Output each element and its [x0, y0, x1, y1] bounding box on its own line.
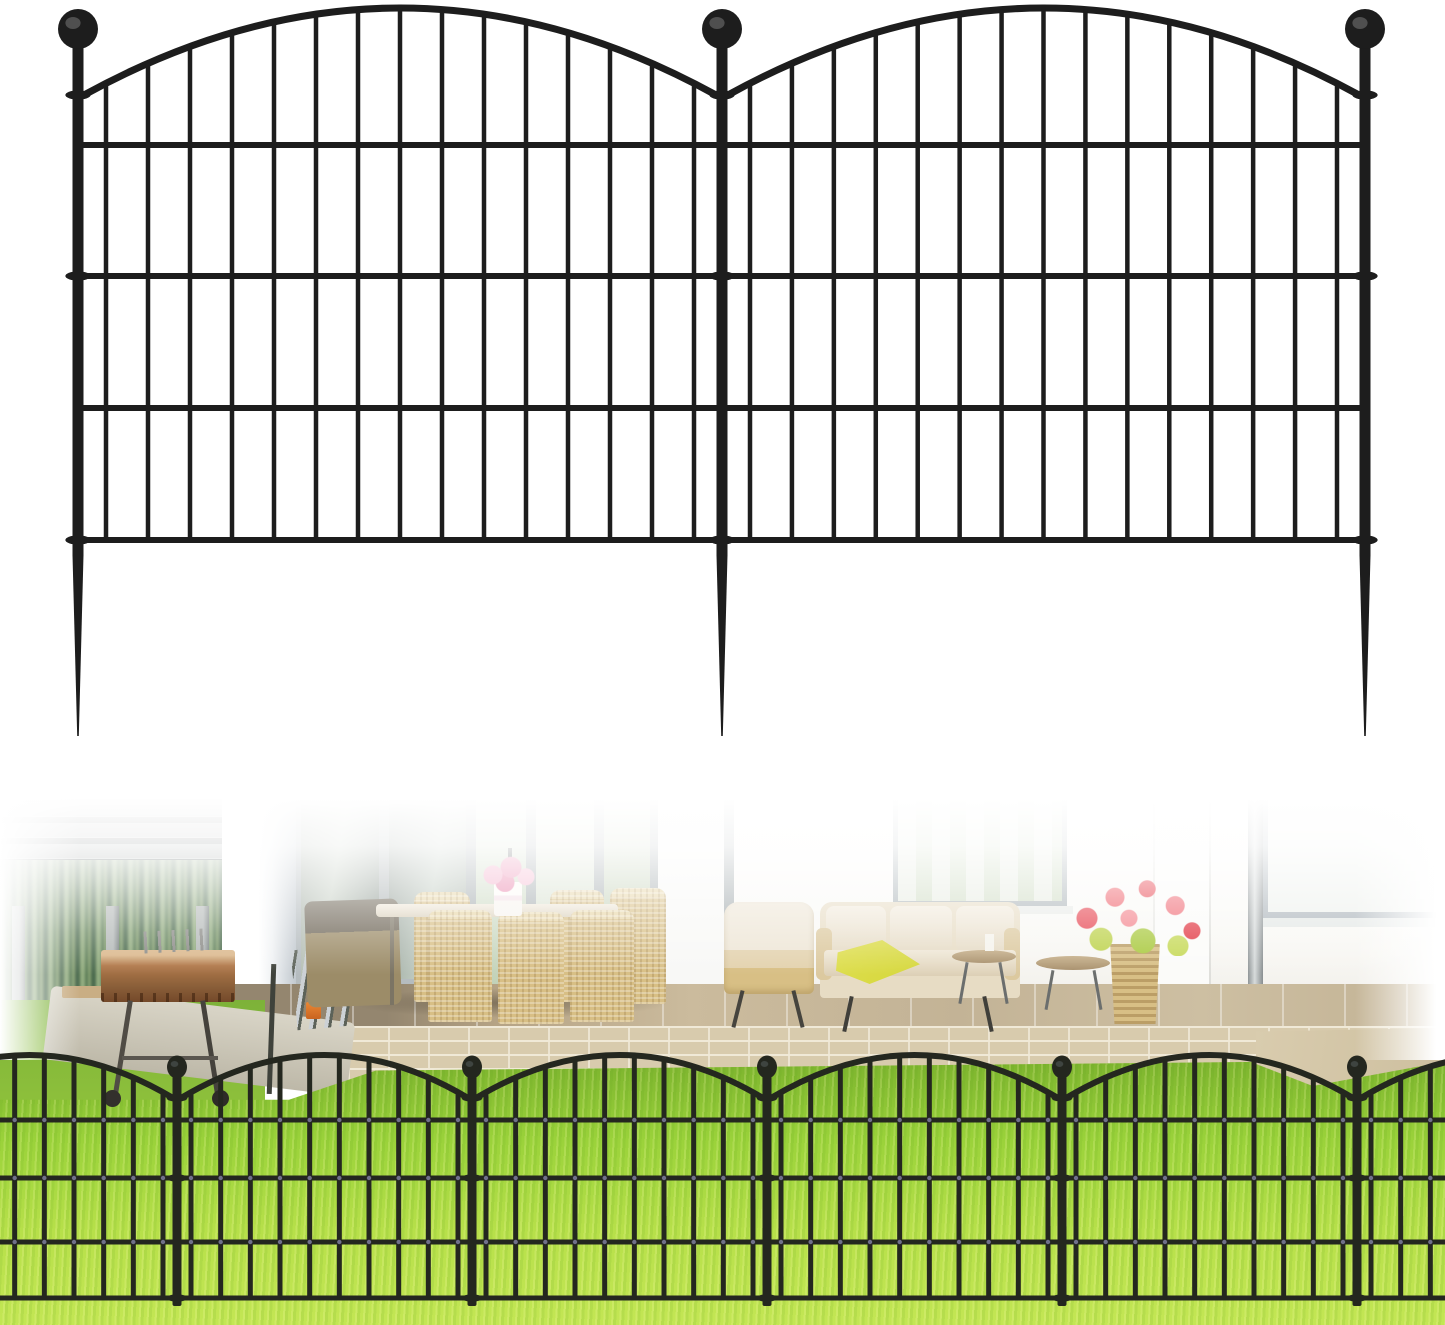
- weld-joint: [101, 1118, 105, 1122]
- fence-bar: [1016, 1078, 1021, 1298]
- post-tube: [717, 46, 728, 557]
- fence-bar: [396, 1066, 401, 1298]
- ball-highlight: [761, 1061, 769, 1067]
- fence-bar: [356, 10, 361, 540]
- fence-bar: [957, 14, 962, 540]
- weld-joint: [396, 1240, 400, 1244]
- ball-finial: [1345, 9, 1385, 49]
- fence-bar: [751, 1092, 756, 1298]
- ball-finial: [757, 1056, 777, 1079]
- weld-joint: [1016, 1118, 1020, 1122]
- fence-bar: [608, 46, 613, 540]
- weld-joint: [1103, 1118, 1107, 1122]
- weld-joint: [662, 1176, 666, 1180]
- fence-bar: [1041, 8, 1046, 540]
- fence-bar: [1167, 22, 1172, 540]
- fence-bar: [1398, 1078, 1403, 1298]
- weld-joint: [396, 1176, 400, 1180]
- weld-joint: [484, 1240, 488, 1244]
- weld-joint: [662, 1118, 666, 1122]
- ball-highlight: [1352, 17, 1367, 29]
- fence-bar: [1083, 10, 1088, 540]
- weld-joint: [1311, 1118, 1315, 1122]
- weld-joint: [12, 1240, 16, 1244]
- weld-joint: [307, 1118, 311, 1122]
- weld-joint: [779, 1240, 783, 1244]
- weld-joint: [1398, 1240, 1402, 1244]
- weld-joint: [426, 1118, 430, 1122]
- fence-arch-rail: [0, 1055, 173, 1098]
- weld-joint: [721, 1176, 725, 1180]
- spike-stake: [1360, 555, 1371, 736]
- weld-joint: [426, 1176, 430, 1180]
- weld-joint: [161, 1240, 165, 1244]
- weld-joint: [72, 1240, 76, 1244]
- weld-joint: [1369, 1176, 1373, 1180]
- ball-finial: [1052, 1056, 1072, 1079]
- weld-joint: [248, 1240, 252, 1244]
- weld-joint: [1133, 1176, 1137, 1180]
- fence-bar: [272, 22, 277, 540]
- weld-joint: [12, 1176, 16, 1180]
- weld-joint: [751, 1118, 755, 1122]
- weld-joint: [986, 1118, 990, 1122]
- weld-joint: [72, 1118, 76, 1122]
- weld-joint: [957, 1118, 961, 1122]
- post-tube: [468, 1076, 477, 1306]
- weld-joint: [632, 1176, 636, 1180]
- fence-bar: [1103, 1078, 1108, 1298]
- weld-joint: [543, 1176, 547, 1180]
- fence-bar: [999, 10, 1004, 540]
- installed-fence-foreground: [0, 760, 1445, 1325]
- weld-joint: [691, 1176, 695, 1180]
- weld-joint: [1428, 1240, 1432, 1244]
- weld-joint: [573, 1240, 577, 1244]
- weld-joint: [1369, 1118, 1373, 1122]
- weld-joint: [1103, 1176, 1107, 1180]
- weld-joint: [1046, 1118, 1050, 1122]
- weld-joint: [426, 1240, 430, 1244]
- weld-joint: [131, 1118, 135, 1122]
- weld-joint: [1133, 1118, 1137, 1122]
- fence-panels-render: [0, 0, 1445, 762]
- fence-bar: [314, 14, 319, 540]
- fence-bar: [1074, 1092, 1079, 1298]
- ball-highlight: [65, 17, 80, 29]
- fence-bar: [1335, 83, 1340, 540]
- weld-joint: [691, 1240, 695, 1244]
- fence-bar: [101, 1066, 106, 1298]
- fence-bar: [874, 33, 879, 540]
- fence-post: [58, 9, 98, 736]
- weld-joint: [868, 1118, 872, 1122]
- fence-bar: [513, 1078, 518, 1298]
- weld-joint: [367, 1118, 371, 1122]
- weld-joint: [218, 1240, 222, 1244]
- fence-bar: [748, 83, 753, 540]
- weld-joint: [1046, 1176, 1050, 1180]
- spike-stake: [717, 555, 728, 736]
- fence-bar: [1341, 1092, 1346, 1298]
- post-tube: [1058, 1076, 1067, 1306]
- weld-joint: [838, 1118, 842, 1122]
- fence-bar: [1209, 33, 1214, 540]
- weld-joint: [1163, 1240, 1167, 1244]
- fence-bar: [104, 83, 109, 540]
- weld-joint: [513, 1118, 517, 1122]
- weld-joint: [1074, 1240, 1078, 1244]
- fence-bar: [779, 1092, 784, 1298]
- fence-post: [702, 9, 742, 736]
- post-tube: [763, 1076, 772, 1306]
- ball-finial: [58, 9, 98, 49]
- weld-joint: [897, 1176, 901, 1180]
- weld-joint: [101, 1240, 105, 1244]
- weld-joint: [1016, 1176, 1020, 1180]
- fence-bar: [566, 33, 571, 540]
- ball-highlight: [709, 17, 724, 29]
- weld-joint: [751, 1176, 755, 1180]
- weld-joint: [1398, 1176, 1402, 1180]
- post-tube: [1360, 46, 1371, 557]
- weld-joint: [602, 1240, 606, 1244]
- ball-highlight: [1351, 1061, 1359, 1067]
- ball-highlight: [466, 1061, 474, 1067]
- weld-joint: [189, 1240, 193, 1244]
- fence-bar: [161, 1092, 166, 1298]
- fence-bar: [1125, 14, 1130, 540]
- fence-bar: [543, 1066, 548, 1298]
- weld-joint: [751, 1240, 755, 1244]
- weld-joint: [1222, 1240, 1226, 1244]
- ball-finial: [702, 9, 742, 49]
- product-image: Product image of black metal decorative …: [0, 0, 1445, 1325]
- weld-joint: [396, 1118, 400, 1122]
- weld-joint: [72, 1176, 76, 1180]
- weld-joint: [897, 1118, 901, 1122]
- fence-bar: [1369, 1092, 1374, 1298]
- fence-bar: [721, 1078, 726, 1298]
- fence-bar: [1293, 63, 1298, 540]
- weld-joint: [1252, 1176, 1256, 1180]
- fence-arch-rail: [771, 1055, 1058, 1098]
- weld-joint: [161, 1118, 165, 1122]
- fence-bar: [482, 14, 487, 540]
- weld-joint: [897, 1240, 901, 1244]
- fence-bar: [1133, 1066, 1138, 1298]
- weld-joint: [307, 1176, 311, 1180]
- ball-finial: [1347, 1056, 1367, 1079]
- weld-joint: [218, 1176, 222, 1180]
- weld-joint: [1016, 1240, 1020, 1244]
- weld-joint: [868, 1176, 872, 1180]
- weld-joint: [1192, 1240, 1196, 1244]
- fence-bar: [484, 1092, 489, 1298]
- weld-joint: [808, 1240, 812, 1244]
- weld-joint: [1222, 1176, 1226, 1180]
- weld-joint: [986, 1240, 990, 1244]
- weld-joint: [1311, 1240, 1315, 1244]
- weld-joint: [248, 1118, 252, 1122]
- weld-joint: [1311, 1176, 1315, 1180]
- weld-joint: [838, 1240, 842, 1244]
- weld-joint: [131, 1240, 135, 1244]
- weld-joint: [42, 1240, 46, 1244]
- weld-joint: [1341, 1176, 1345, 1180]
- spike-stake: [73, 555, 84, 736]
- fence-bar: [218, 1078, 223, 1298]
- weld-joint: [189, 1118, 193, 1122]
- weld-joint: [1252, 1118, 1256, 1122]
- weld-joint: [1074, 1118, 1078, 1122]
- fence-bar: [838, 1066, 843, 1298]
- weld-joint: [218, 1118, 222, 1122]
- weld-joint: [957, 1240, 961, 1244]
- fence-arch-rail: [1066, 1055, 1353, 1098]
- weld-joint: [779, 1118, 783, 1122]
- ball-finial: [167, 1056, 187, 1079]
- weld-joint: [278, 1118, 282, 1122]
- weld-joint: [367, 1176, 371, 1180]
- weld-joint: [1163, 1176, 1167, 1180]
- weld-joint: [1252, 1240, 1256, 1244]
- ball-highlight: [1056, 1061, 1064, 1067]
- weld-joint: [1341, 1240, 1345, 1244]
- weld-joint: [456, 1240, 460, 1244]
- weld-joint: [1192, 1118, 1196, 1122]
- weld-joint: [513, 1176, 517, 1180]
- weld-joint: [808, 1176, 812, 1180]
- weld-joint: [1192, 1176, 1196, 1180]
- weld-joint: [456, 1118, 460, 1122]
- weld-joint: [838, 1176, 842, 1180]
- weld-joint: [721, 1118, 725, 1122]
- weld-joint: [337, 1176, 341, 1180]
- ball-finial: [462, 1056, 482, 1079]
- weld-joint: [602, 1118, 606, 1122]
- weld-joint: [1428, 1176, 1432, 1180]
- fence-bar: [986, 1066, 991, 1298]
- weld-joint: [189, 1176, 193, 1180]
- post-tube: [1353, 1076, 1362, 1306]
- fence-bar: [146, 63, 151, 540]
- weld-joint: [42, 1118, 46, 1122]
- fence-bar: [188, 46, 193, 540]
- post-tube: [173, 1076, 182, 1306]
- fence-bar: [1281, 1066, 1286, 1298]
- fence-arch-rail: [476, 1055, 763, 1098]
- weld-joint: [1074, 1176, 1078, 1180]
- weld-joint: [632, 1118, 636, 1122]
- weld-joint: [1103, 1240, 1107, 1244]
- fence-bar: [650, 63, 655, 540]
- weld-joint: [927, 1118, 931, 1122]
- weld-joint: [307, 1240, 311, 1244]
- weld-joint: [367, 1240, 371, 1244]
- weld-joint: [1046, 1240, 1050, 1244]
- weld-joint: [101, 1176, 105, 1180]
- weld-joint: [662, 1240, 666, 1244]
- fence-bar: [456, 1092, 461, 1298]
- weld-joint: [868, 1240, 872, 1244]
- weld-joint: [1133, 1240, 1137, 1244]
- weld-joint: [1369, 1240, 1373, 1244]
- weld-joint: [484, 1176, 488, 1180]
- weld-joint: [927, 1240, 931, 1244]
- weld-joint: [1428, 1118, 1432, 1122]
- weld-joint: [602, 1176, 606, 1180]
- fence-bar: [131, 1078, 136, 1298]
- weld-joint: [543, 1240, 547, 1244]
- weld-joint: [278, 1240, 282, 1244]
- weld-joint: [337, 1118, 341, 1122]
- weld-joint: [1398, 1118, 1402, 1122]
- weld-joint: [248, 1176, 252, 1180]
- weld-joint: [1281, 1118, 1285, 1122]
- weld-joint: [1341, 1118, 1345, 1122]
- fence-bar: [398, 8, 403, 540]
- fence-arch-rail: [181, 1055, 468, 1098]
- weld-joint: [543, 1118, 547, 1122]
- fence-bar: [692, 83, 697, 540]
- weld-joint: [161, 1176, 165, 1180]
- fence-bar: [691, 1066, 696, 1298]
- weld-joint: [456, 1176, 460, 1180]
- weld-joint: [278, 1176, 282, 1180]
- weld-joint: [957, 1176, 961, 1180]
- weld-joint: [1281, 1176, 1285, 1180]
- fence-bar: [426, 1078, 431, 1298]
- fence-bar: [790, 63, 795, 540]
- weld-joint: [131, 1176, 135, 1180]
- weld-joint: [337, 1240, 341, 1244]
- fence-bar: [1428, 1066, 1433, 1298]
- fence-bar: [189, 1092, 194, 1298]
- fence-bar: [915, 22, 920, 540]
- weld-joint: [12, 1118, 16, 1122]
- weld-joint: [632, 1240, 636, 1244]
- weld-joint: [573, 1118, 577, 1122]
- fence-bar: [440, 10, 445, 540]
- fence-bar: [1251, 46, 1256, 540]
- weld-joint: [986, 1176, 990, 1180]
- fence-bar: [524, 22, 529, 540]
- weld-joint: [927, 1176, 931, 1180]
- installation-photo-section: [0, 760, 1445, 1325]
- weld-joint: [513, 1240, 517, 1244]
- fence-post: [1345, 9, 1385, 736]
- product-render-section: [0, 0, 1445, 762]
- ball-highlight: [171, 1061, 179, 1067]
- weld-joint: [1222, 1118, 1226, 1122]
- weld-joint: [484, 1118, 488, 1122]
- weld-joint: [573, 1176, 577, 1180]
- fence-bar: [808, 1078, 813, 1298]
- weld-joint: [721, 1240, 725, 1244]
- fence-bar: [230, 33, 235, 540]
- weld-joint: [779, 1176, 783, 1180]
- weld-joint: [691, 1118, 695, 1122]
- post-tube: [73, 46, 84, 557]
- weld-joint: [1163, 1118, 1167, 1122]
- weld-joint: [42, 1176, 46, 1180]
- weld-joint: [808, 1118, 812, 1122]
- fence-bar: [248, 1066, 253, 1298]
- fence-bar: [832, 46, 837, 540]
- fence-bar: [1311, 1078, 1316, 1298]
- fence-bar: [1046, 1092, 1051, 1298]
- weld-joint: [1281, 1240, 1285, 1244]
